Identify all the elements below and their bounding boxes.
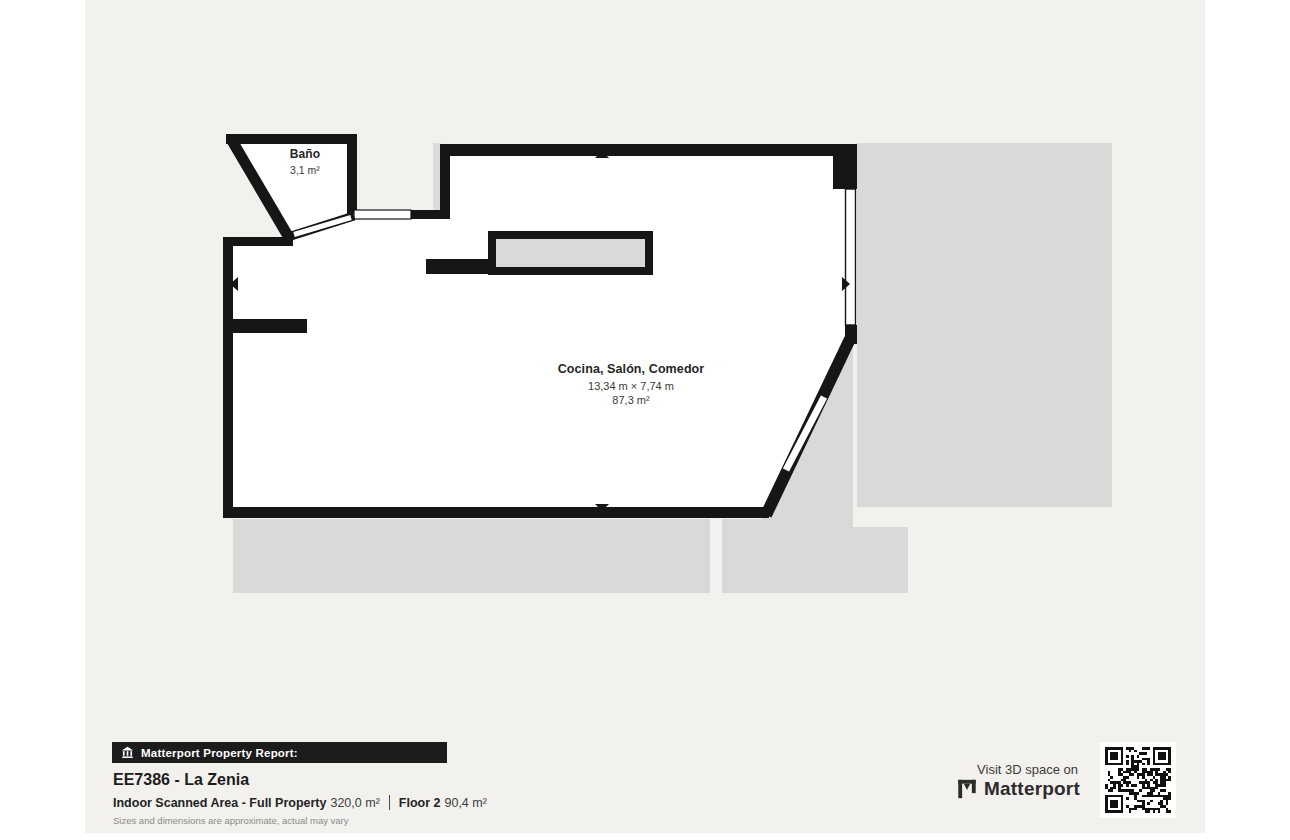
matterport-brand-link[interactable]: Matterport: [860, 778, 1080, 800]
opening-hall: [354, 210, 411, 219]
room-area: 3,1 m²: [245, 164, 365, 176]
wall-entry-top: [223, 237, 293, 246]
property-report-page: Baño 3,1 m² Cocina, Salón, Comedor 13,34…: [0, 0, 1290, 840]
floor-interior: [223, 136, 857, 516]
scanned-area-label: Indoor Scanned Area - Full Property: [113, 796, 326, 810]
room-area: 87,3 m²: [521, 394, 741, 406]
property-title: EE7386 - La Zenia: [113, 771, 249, 789]
disclaimer-text: Sizes and dimensions are approximate, ac…: [113, 815, 349, 826]
floor-plan-canvas: [0, 0, 1290, 840]
report-banner: Matterport Property Report:: [112, 742, 447, 763]
adjacent-area-right: [857, 143, 1112, 507]
qr-code-pattern: [1105, 747, 1171, 813]
room-name: Cocina, Salón, Comedor: [521, 362, 741, 376]
wall-main-left-upper: [440, 144, 450, 219]
building-icon: [121, 746, 134, 759]
room-dimensions: 13,34 m × 7,74 m: [521, 380, 741, 392]
floor-area-value: 90,4 m²: [444, 796, 486, 810]
wall-left: [223, 237, 233, 518]
room-label-bano: Baño 3,1 m²: [245, 147, 365, 176]
wall-top: [440, 144, 857, 156]
matterport-logo-icon: [956, 778, 978, 800]
wall-right-corner: [833, 144, 857, 189]
separator-bar: [389, 795, 390, 810]
window-right-wall: [846, 189, 856, 325]
kitchen-counter: [492, 235, 649, 271]
matterport-brand-name: Matterport: [984, 778, 1080, 800]
visit-3d-text: Visit 3D space on: [880, 762, 1078, 777]
wall-kitchen: [426, 259, 490, 274]
qr-code[interactable]: [1100, 742, 1176, 818]
floor-label: Floor 2: [399, 796, 441, 810]
adjacent-area-bottom-left: [233, 519, 710, 593]
wall-shadow-sliver: [433, 143, 441, 213]
measurements-row: Indoor Scanned Area - Full Property 320,…: [113, 795, 487, 810]
room-name: Baño: [245, 147, 365, 161]
wall-bano-top: [226, 134, 357, 144]
report-banner-label: Matterport Property Report:: [141, 747, 298, 759]
room-label-cocina-salon-comedor: Cocina, Salón, Comedor 13,34 m × 7,74 m …: [521, 362, 741, 406]
wall-bottom: [223, 507, 769, 518]
wall-stub-left: [223, 319, 307, 333]
scanned-area-value: 320,0 m²: [330, 796, 379, 810]
